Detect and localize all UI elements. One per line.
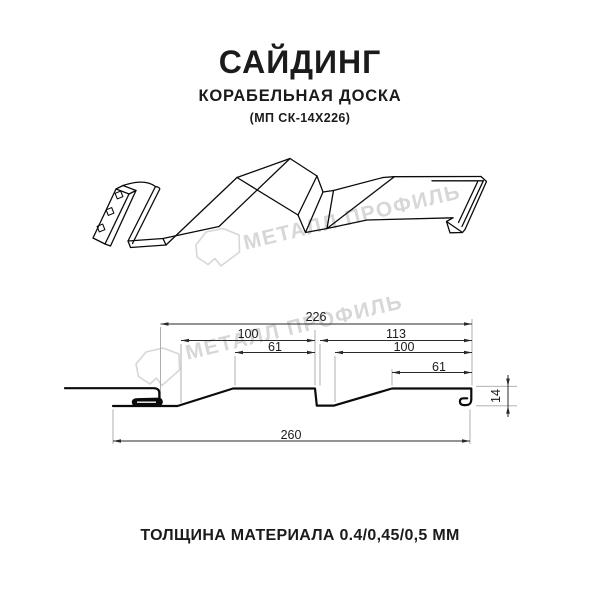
cross-section-view [65, 388, 471, 406]
panel-lock-seam [132, 398, 163, 407]
nail-strip-holes [97, 191, 123, 232]
metall-profil-logo-icon [136, 229, 240, 386]
perspective-view [93, 159, 487, 248]
dimension-lines [113, 324, 508, 441]
extension-lines [113, 319, 517, 444]
drawing-canvas [0, 0, 600, 600]
product-drawing-page: { "header": { "title": "САЙДИНГ", "subti… [0, 0, 600, 600]
